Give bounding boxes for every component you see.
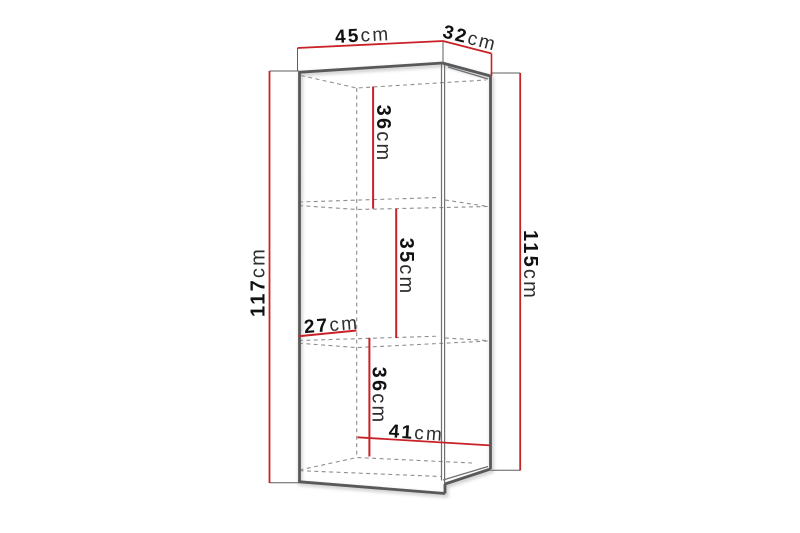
svg-text:45cm: 45cm (335, 24, 391, 48)
svg-text:27cm: 27cm (303, 313, 360, 338)
svg-text:41cm: 41cm (388, 421, 445, 446)
svg-text:36cm: 36cm (372, 105, 394, 163)
svg-text:115cm: 115cm (519, 230, 541, 300)
svg-text:117cm: 117cm (248, 247, 270, 317)
svg-text:35cm: 35cm (395, 238, 417, 296)
svg-text:32cm: 32cm (440, 22, 499, 56)
svg-text:36cm: 36cm (368, 367, 390, 425)
